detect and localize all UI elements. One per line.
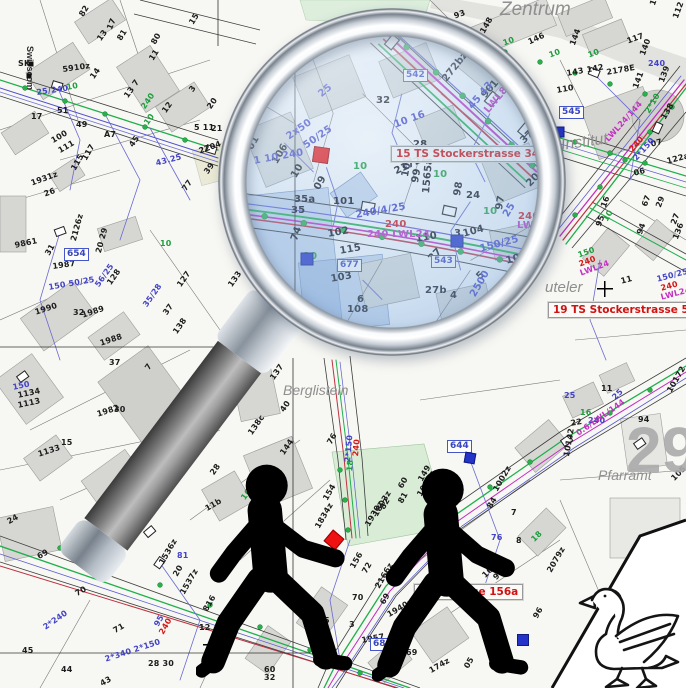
- parcel-number: 25: [564, 392, 576, 400]
- parcel-number: 13 7: [123, 78, 141, 99]
- street-name: Zentrum: [500, 0, 571, 19]
- parcel-number: 39: [203, 162, 216, 176]
- parcel-number: 10: [548, 48, 562, 59]
- street-name: Berglistein: [283, 383, 348, 397]
- parcel-number: 110: [556, 84, 574, 95]
- parcel-number: 28 30: [148, 660, 174, 668]
- parcel-number: 82: [78, 4, 91, 18]
- parcel-number: 1990: [34, 302, 58, 317]
- parcel-number: 10: [160, 240, 172, 248]
- parcel-number: 2126z: [70, 213, 85, 242]
- parcel-number: 2204: [198, 140, 222, 155]
- parcel-number: 9861: [14, 237, 38, 250]
- parcel-number: 10: [587, 48, 601, 59]
- parcel-number: 29: [655, 195, 666, 209]
- parcel-number: 81: [177, 552, 189, 560]
- parcel-number: 37: [162, 303, 175, 317]
- plan-number-box: 545: [559, 106, 584, 119]
- parcel-number: 1113: [17, 397, 41, 410]
- parcel-number: 150 50/25: [48, 276, 95, 292]
- street-name: 29: [626, 418, 686, 482]
- parcel-number: 1133: [37, 444, 61, 459]
- parcel-number: 10: [143, 113, 156, 127]
- parcel-number: 16: [600, 195, 611, 209]
- parcel-number: 06: [633, 167, 646, 178]
- parcel-number: 43: [99, 675, 113, 688]
- parcel-number: 143 142: [566, 63, 604, 77]
- parcel-number: 71: [112, 622, 126, 635]
- parcel-number: 133: [227, 270, 243, 289]
- parcel-number: 144: [569, 28, 582, 47]
- parcel-number: 69: [36, 548, 50, 561]
- parcel-number: 43.25: [155, 153, 182, 168]
- parcel-number: 1931z: [30, 170, 59, 187]
- parcel-number: 51: [57, 107, 69, 115]
- parcel-number: 70: [74, 585, 88, 598]
- parcel-number: 16: [649, 0, 660, 7]
- parcel-number: 0.6/LWL/144: [575, 398, 627, 437]
- parcel-number: 115: [70, 153, 86, 172]
- parcel-number: 1988: [99, 333, 123, 348]
- parcel-number: 77: [181, 179, 194, 193]
- parcel-number: 5910z: [62, 62, 91, 74]
- parcel-number: 240: [140, 92, 156, 111]
- map-collage: 17821315818011SK5910z1425/24013 72403125…: [0, 0, 686, 688]
- plan-number-box: 654: [64, 248, 89, 261]
- parcel-number: 17: [31, 113, 43, 121]
- black-marker: [29, 62, 34, 67]
- parcel-number: 31: [44, 243, 57, 257]
- parcel-number: 40: [279, 400, 292, 414]
- parcel-number: 2079z: [546, 546, 567, 574]
- parcel-number: 5 11: [194, 124, 214, 132]
- parcel-number: 15: [188, 12, 201, 26]
- parcel-number: 24: [6, 513, 20, 526]
- parcel-number: 20: [172, 564, 185, 578]
- parcel-number: 141: [632, 71, 645, 90]
- parcel-number: 111: [57, 139, 76, 155]
- pedestrian-figure-right: [372, 466, 544, 688]
- parcel-number: 80: [150, 32, 163, 46]
- survey-cross: [597, 281, 613, 297]
- street-name: uteler: [545, 280, 583, 295]
- parcel-number: 10172: [666, 365, 686, 394]
- parcel-number: 3: [188, 84, 198, 93]
- parcel-number: 15: [61, 439, 73, 447]
- parcel-number: 1987: [52, 260, 76, 271]
- black-marker: [27, 74, 32, 79]
- parcel-number: 7: [144, 362, 154, 371]
- parcel-number: 10142: [563, 428, 576, 458]
- parcel-number: 35/28: [142, 283, 164, 309]
- parcel-number: 144: [279, 438, 295, 457]
- parcel-number: 44: [61, 666, 73, 674]
- parcel-number: 45: [128, 135, 141, 149]
- parcel-number: 49: [76, 121, 88, 129]
- parcel-number: 1989: [81, 305, 105, 320]
- parcel-number: 20: [206, 97, 219, 111]
- parcel-number: 12: [161, 101, 174, 115]
- station-label: 19 TS Stockerstrasse 5: [548, 302, 686, 318]
- parcel-number: 20 29: [95, 227, 109, 254]
- parcel-number: 2*10: [644, 92, 662, 115]
- parcel-number: 122a: [666, 152, 686, 166]
- magnifier-rim: [218, 8, 566, 356]
- parcel-number: 17: [106, 17, 118, 31]
- parcel-number: 127: [176, 270, 192, 289]
- parcel-number: 13: [96, 29, 109, 43]
- parcel-number: A7: [104, 131, 116, 139]
- parcel-number: 76: [326, 432, 339, 446]
- parcel-number: 10: [66, 82, 79, 92]
- parcel-number: 1982: [96, 404, 120, 419]
- parcel-number: 37: [109, 359, 121, 367]
- parcel-number: 1536z: [158, 538, 179, 566]
- parcel-number: 11: [601, 385, 613, 393]
- pedestrian-figure-left: [196, 462, 368, 688]
- parcel-number: 14: [89, 67, 102, 81]
- parcel-number: 11: [620, 275, 633, 286]
- parcel-number: 81: [116, 28, 129, 42]
- street-name: Swisscom: [25, 46, 34, 90]
- plan-number-box: 644: [447, 440, 472, 453]
- street-name: Institut: [560, 131, 609, 153]
- parcel-number: 2*240: [42, 609, 69, 631]
- parcel-number: 25/240: [36, 85, 69, 97]
- parcel-number: 45: [22, 647, 34, 655]
- parcel-number: 93: [453, 9, 467, 20]
- parcel-number: 138: [172, 317, 188, 336]
- parcel-number: 11: [148, 48, 161, 62]
- parcel-number: 94: [636, 222, 647, 236]
- parcel-number: 138: [660, 102, 676, 121]
- blue-marker: [464, 452, 477, 465]
- parcel-number: 67: [641, 194, 652, 208]
- parcel-number: 2178E: [606, 64, 636, 77]
- parcel-number: 240: [648, 60, 665, 68]
- parcel-number: 26: [43, 187, 57, 198]
- parcel-number: 112: [672, 1, 685, 20]
- parcel-number: 138c: [247, 414, 266, 437]
